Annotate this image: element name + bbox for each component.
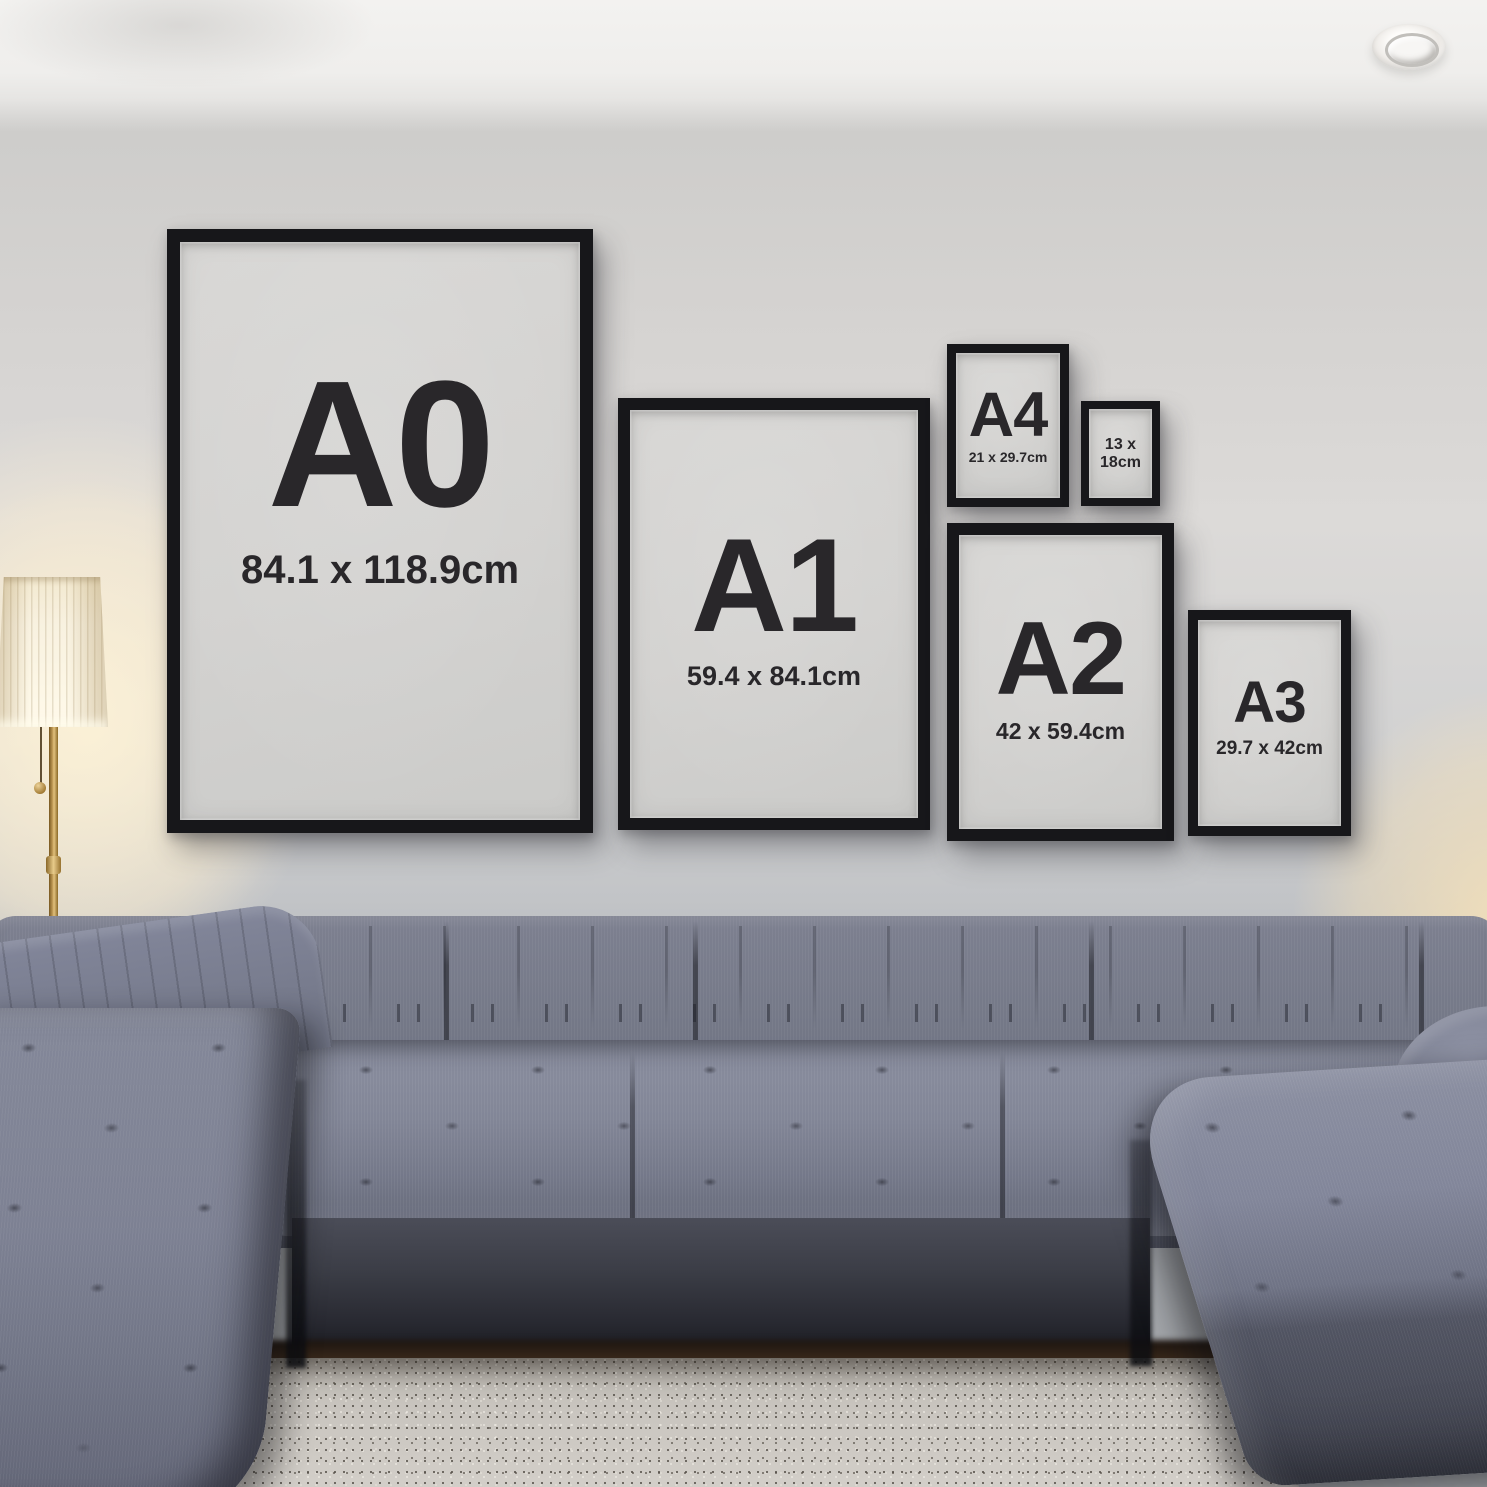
lamp-pull-chain [40,722,42,784]
poster-a0-label: A0 [268,357,493,533]
poster-a4-dimensions: 21 x 29.7cm [969,450,1048,466]
poster-a0: A0 84.1 x 118.9cm [180,242,580,820]
chaise-gap-shadow-right [1130,1140,1152,1366]
lamp-pull-chain-ball [34,782,46,794]
lamp-pole-joint [46,856,61,874]
poster-a4-label: A4 [969,385,1048,447]
frame-a1: A1 59.4 x 84.1cm [618,398,930,830]
sofa-base-front [292,1218,1150,1360]
poster-a3-label: A3 [1233,675,1305,732]
poster-a1: A1 59.4 x 84.1cm [630,410,918,818]
poster-a3: A3 29.7 x 42cm [1198,620,1341,826]
frame-a4: A4 21 x 29.7cm [947,344,1069,507]
shag-rug [170,1358,1300,1487]
poster-13x18: 13 x 18cm [1089,409,1152,498]
sofa-left-chaise [0,1008,302,1487]
frame-13x18: 13 x 18cm [1081,401,1160,506]
poster-a0-dimensions: 84.1 x 118.9cm [241,548,519,593]
poster-a4: A4 21 x 29.7cm [956,353,1060,498]
frame-a3: A3 29.7 x 42cm [1188,610,1351,836]
poster-a2: A2 42 x 59.4cm [959,535,1162,829]
poster-a1-label: A1 [691,521,857,651]
poster-13x18-dimensions-line2: 18cm [1100,454,1141,472]
poster-a3-dimensions: 29.7 x 42cm [1216,738,1323,759]
frame-a0: A0 84.1 x 118.9cm [167,229,593,833]
poster-13x18-dimensions-line1: 13 x [1100,436,1141,454]
sofa-back-tuft-marks [150,1004,1418,1022]
sofa-seat-seam [1000,1052,1005,1234]
frame-a2: A2 42 x 59.4cm [947,523,1174,841]
living-room-poster-size-guide: A0 84.1 x 118.9cm A1 59.4 x 84.1cm A4 21… [0,0,1487,1487]
poster-13x18-dimensions: 13 x 18cm [1100,436,1141,472]
poster-a1-dimensions: 59.4 x 84.1cm [687,661,861,691]
recessed-ceiling-light [1372,24,1446,70]
poster-a2-dimensions: 42 x 59.4cm [996,719,1125,745]
poster-a2-label: A2 [996,609,1126,711]
lamp-shade [0,577,108,727]
sofa-seat-seam [630,1052,635,1234]
